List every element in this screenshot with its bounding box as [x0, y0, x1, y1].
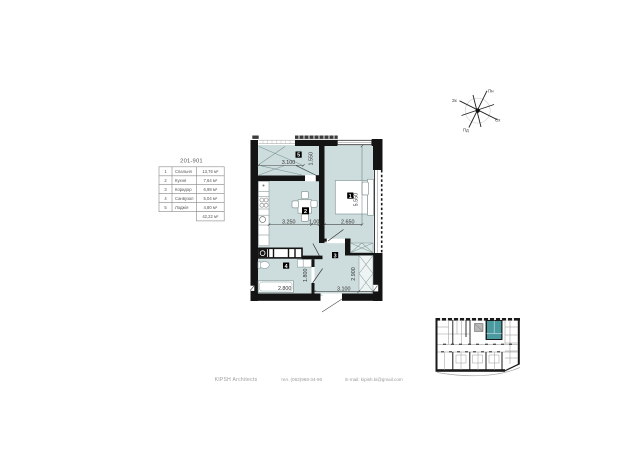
svg-text:Пд: Пд	[463, 128, 469, 133]
svg-text:4,80 м²: 4,80 м²	[204, 205, 218, 210]
svg-text:5.550: 5.550	[354, 193, 360, 207]
svg-text:1.00: 1.00	[309, 220, 320, 226]
svg-text:6,98 м²: 6,98 м²	[204, 187, 218, 192]
svg-text:4: 4	[285, 264, 288, 270]
svg-text:Пн: Пн	[488, 89, 494, 94]
svg-text:2.650: 2.650	[341, 220, 355, 226]
svg-text:Лоджія: Лоджія	[175, 205, 188, 210]
svg-text:1: 1	[349, 194, 352, 200]
svg-text:KIPSH Architects: KIPSH Architects	[215, 377, 258, 383]
svg-text:2.900: 2.900	[351, 267, 357, 281]
svg-text:3.250: 3.250	[282, 220, 296, 226]
svg-text:7,64 м²: 7,64 м²	[204, 178, 218, 183]
svg-text:Коридор: Коридор	[175, 187, 192, 192]
svg-text:3.100: 3.100	[337, 286, 351, 292]
svg-text:2.800: 2.800	[278, 286, 292, 292]
svg-text:Кухня: Кухня	[175, 178, 186, 183]
svg-text:5,04 м²: 5,04 м²	[204, 196, 218, 201]
svg-text:1.550: 1.550	[309, 152, 315, 166]
svg-text:3.100: 3.100	[282, 160, 296, 166]
svg-text:2: 2	[304, 209, 307, 215]
svg-text:Сх: Сх	[495, 118, 501, 123]
svg-text:тел. (063)968-34-90: тел. (063)968-34-90	[281, 377, 323, 382]
svg-text:13,76 м²: 13,76 м²	[202, 169, 219, 174]
svg-text:E-mail: kipish.ki@gmail.com: E-mail: kipish.ki@gmail.com	[345, 377, 403, 382]
svg-text:Спальня: Спальня	[175, 169, 192, 174]
svg-text:1.800: 1.800	[303, 269, 309, 283]
svg-text:3: 3	[334, 253, 337, 259]
svg-text:5: 5	[297, 153, 300, 159]
svg-text:Зх: Зх	[452, 98, 458, 103]
svg-text:201-901: 201-901	[180, 159, 203, 165]
svg-text:42,22 м²: 42,22 м²	[202, 214, 219, 219]
svg-text:Санвузол: Санвузол	[175, 196, 194, 201]
